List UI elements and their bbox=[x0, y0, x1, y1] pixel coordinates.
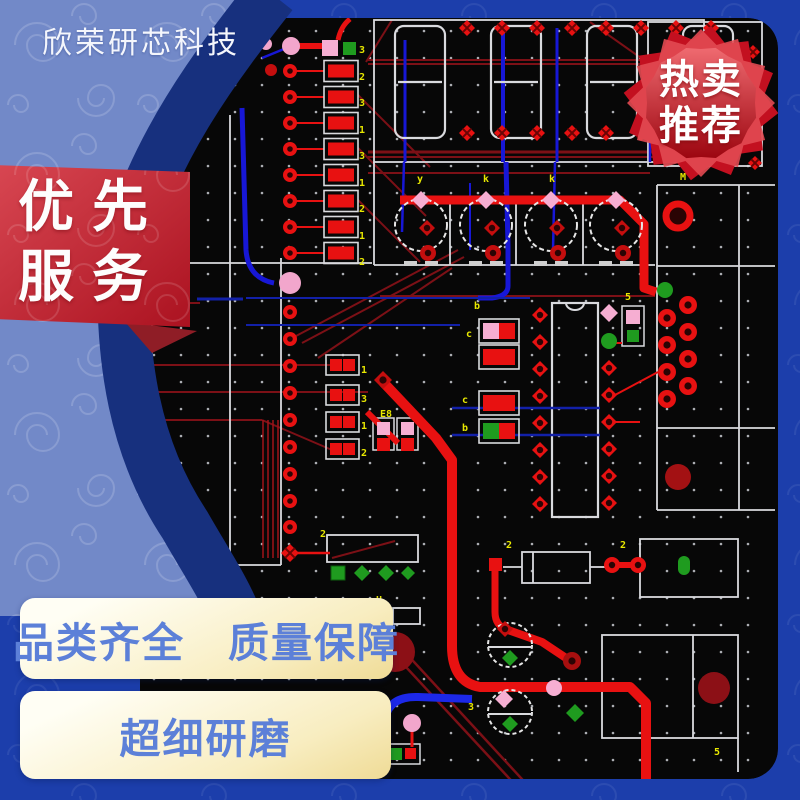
feature-pill-1-text: 品类齐全 质量保障 bbox=[13, 609, 400, 669]
ribbon-text: 优先服务 bbox=[18, 172, 183, 312]
svg-text:1: 1 bbox=[359, 178, 365, 189]
svg-text:1: 1 bbox=[359, 125, 365, 136]
feature-pill-2-text: 超细研磨 bbox=[120, 705, 292, 765]
svg-text:3: 3 bbox=[359, 151, 365, 162]
svg-text:2: 2 bbox=[359, 72, 365, 83]
svg-text:3: 3 bbox=[361, 394, 367, 405]
seal-text: 热卖推荐 bbox=[629, 57, 773, 149]
svg-text:2: 2 bbox=[620, 540, 626, 551]
svg-text:3: 3 bbox=[359, 98, 365, 109]
svg-text:y: y bbox=[417, 174, 423, 185]
svg-text:M: M bbox=[680, 172, 686, 183]
svg-text:5: 5 bbox=[625, 292, 631, 303]
svg-text:5: 5 bbox=[714, 747, 720, 758]
svg-text:2: 2 bbox=[361, 448, 367, 459]
svg-text:1: 1 bbox=[361, 365, 367, 376]
svg-text:1: 1 bbox=[361, 421, 367, 432]
svg-text:k: k bbox=[549, 174, 555, 185]
svg-text:2: 2 bbox=[359, 257, 365, 268]
feature-pill-2: 超细研磨 bbox=[20, 691, 391, 779]
svg-text:1: 1 bbox=[359, 231, 365, 242]
promo-banner: 3231312121312ykkMbccb52H2253E8 欣荣研芯科技 优先… bbox=[0, 0, 800, 800]
seal-line1: 热卖 bbox=[629, 57, 773, 103]
svg-text:k: k bbox=[483, 174, 489, 185]
svg-text:c: c bbox=[462, 395, 468, 406]
svg-text:c: c bbox=[466, 329, 472, 340]
svg-text:b: b bbox=[462, 423, 468, 434]
ribbon-line2: 服务 bbox=[18, 242, 183, 312]
svg-text:3: 3 bbox=[359, 45, 365, 56]
seal-line2: 推荐 bbox=[629, 103, 773, 149]
ribbon-line1: 优先 bbox=[18, 172, 183, 242]
svg-text:3: 3 bbox=[468, 702, 474, 713]
company-name: 欣荣研芯科技 bbox=[42, 18, 302, 62]
feature-pill-1: 品类齐全 质量保障 bbox=[20, 598, 393, 679]
svg-text:2: 2 bbox=[506, 540, 512, 551]
svg-text:E8: E8 bbox=[380, 409, 392, 420]
svg-text:2: 2 bbox=[359, 204, 365, 215]
svg-text:2: 2 bbox=[320, 529, 326, 540]
svg-text:b: b bbox=[474, 301, 480, 312]
